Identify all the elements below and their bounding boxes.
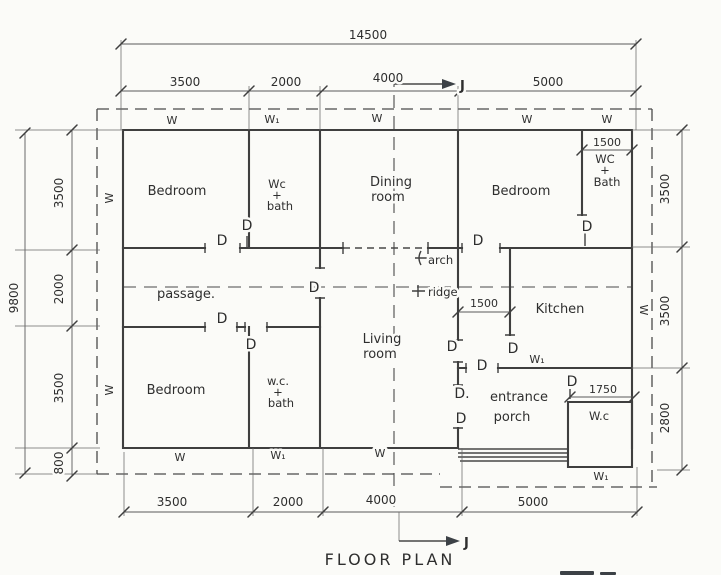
dim-bottom-1: 3500 <box>157 495 188 509</box>
dim-top-4: 5000 <box>533 75 564 89</box>
room-label-living-2: room <box>363 347 397 362</box>
dim-bottom-3: 4000 <box>366 493 397 507</box>
room-label-wc-bath-bottom-3: bath <box>268 396 294 410</box>
window-label-top-2: W₁ <box>264 113 279 126</box>
window-label-top-4: W <box>522 113 533 126</box>
figure-caption-smudge <box>560 571 594 575</box>
window-label-kitchen-wall: W₁ <box>529 353 544 366</box>
window-label-top-5: W <box>602 113 613 126</box>
dim-wcbath-right: 1500 <box>593 136 621 149</box>
section-label-top: J <box>459 79 465 94</box>
floor-plan-drawing: 14500 3500 2000 4000 5000 3500 2000 4000… <box>0 0 721 575</box>
dim-wc-rear: 1750 <box>589 383 617 396</box>
room-label-wc-rear: W.c <box>589 409 609 423</box>
door-label-wcbath-right: D <box>582 219 593 235</box>
annotation-ridge: ridge <box>428 285 458 299</box>
room-label-dining-1: Dining <box>370 175 412 190</box>
window-label-right-kitchen: W <box>637 305 650 316</box>
dim-right-1: 3500 <box>658 174 672 205</box>
window-label-bottom-2: W₁ <box>270 449 285 462</box>
window-label-top-1: W <box>167 114 178 127</box>
room-label-entrance-2: porch <box>494 410 531 425</box>
room-label-bedroom-top-left: Bedroom <box>148 184 207 199</box>
room-label-wc-bath-right-3: Bath <box>594 175 621 189</box>
dim-kitchen-entry: 1500 <box>470 297 498 310</box>
window-label-bottom-3: W <box>375 447 386 460</box>
section-arrow-bottom-head <box>446 536 460 546</box>
dim-left-2: 2000 <box>52 274 66 305</box>
door-label-bedroom3: D <box>217 311 228 327</box>
room-label-dining-2: room <box>371 190 405 205</box>
door-label-wcbath-top: D <box>242 218 253 234</box>
floor-plan-sheet: 14500 3500 2000 4000 5000 3500 2000 4000… <box>0 0 721 575</box>
door-label-kitchen-top: D <box>473 233 484 249</box>
dim-top-total: 14500 <box>349 28 387 42</box>
dim-left-4: 800 <box>52 452 66 475</box>
arch-leader-mark <box>415 251 427 265</box>
extension-lines <box>15 40 690 541</box>
door-label-kitchen-entry: D <box>508 341 519 357</box>
dim-top-2: 2000 <box>271 75 302 89</box>
window-label-left-2: W <box>103 384 116 395</box>
section-arrow-top-head <box>442 79 456 89</box>
room-label-bedroom-top-right: Bedroom <box>492 184 551 199</box>
door-label-porch-2: D <box>456 411 467 427</box>
door-label-bedroom1: D <box>217 233 228 249</box>
room-label-bedroom-bottom-left: Bedroom <box>147 383 206 398</box>
dim-right-3: 2800 <box>658 403 672 434</box>
window-label-top-3: W <box>372 112 383 125</box>
door-label-wcbath-bottom: D <box>246 337 257 353</box>
dim-bottom-2: 2000 <box>273 495 304 509</box>
door-label-living-lobby: D <box>447 339 458 355</box>
door-label-porch-wall: D <box>477 358 488 374</box>
dim-left-total: 9800 <box>7 283 21 314</box>
dimension-ticks <box>20 39 687 517</box>
dim-right-2: 3500 <box>658 296 672 327</box>
door-label-passage-living: D <box>309 280 320 296</box>
porch-steps <box>458 449 568 461</box>
drawing-title: FLOOR PLAN <box>325 550 456 569</box>
room-label-passage: passage. <box>157 287 215 302</box>
window-label-wc-annex: W₁ <box>593 470 608 483</box>
room-label-kitchen: Kitchen <box>536 302 585 317</box>
dim-left-3: 3500 <box>52 373 66 404</box>
annotation-arch: arch <box>428 253 453 267</box>
dim-top-1: 3500 <box>170 75 201 89</box>
dim-top-3: 4000 <box>373 71 404 85</box>
room-label-entrance-1: entrance <box>490 390 548 405</box>
dim-left-1: 3500 <box>52 178 66 209</box>
door-label-wc-rear: D <box>567 374 578 390</box>
door-label-porch-1: D. <box>454 386 469 402</box>
window-label-bottom-1: W <box>175 451 186 464</box>
room-label-living-1: Living <box>363 332 402 347</box>
section-label-bottom: J <box>463 536 469 551</box>
dim-bottom-4: 5000 <box>518 495 549 509</box>
room-label-wc-bath-top-3: bath <box>267 199 293 213</box>
window-label-left-1: W <box>103 192 116 203</box>
